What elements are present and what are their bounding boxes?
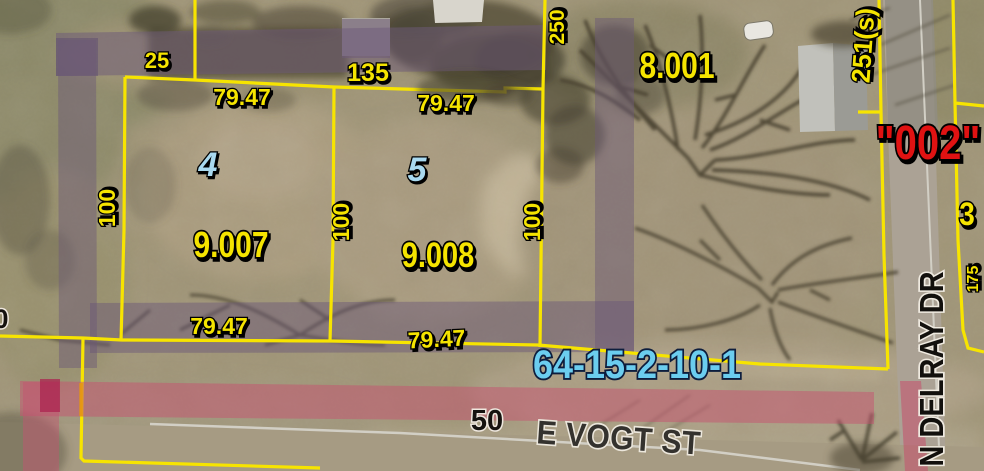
svg-text:175: 175	[965, 266, 982, 293]
svg-text:9.007: 9.007	[193, 225, 268, 265]
svg-text:"002": "002"	[876, 117, 981, 170]
svg-text:5: 5	[408, 151, 428, 189]
svg-text:9.008: 9.008	[402, 235, 475, 274]
svg-text:79.47: 79.47	[213, 84, 271, 110]
svg-text:79.47: 79.47	[190, 313, 248, 339]
svg-text:79.47: 79.47	[407, 325, 466, 354]
svg-text:100: 100	[94, 189, 120, 227]
svg-text:8.001: 8.001	[639, 46, 714, 86]
svg-text:4: 4	[198, 146, 218, 184]
svg-text:64-15-2-10-1: 64-15-2-10-1	[533, 343, 741, 387]
svg-text:50: 50	[471, 405, 503, 437]
svg-text:100: 100	[328, 203, 354, 241]
svg-text:3: 3	[959, 197, 975, 232]
svg-text:79.47: 79.47	[417, 90, 475, 116]
svg-text:25: 25	[145, 48, 169, 73]
svg-text:251(s): 251(s)	[845, 7, 880, 84]
svg-text:135: 135	[347, 59, 389, 87]
svg-text:100: 100	[519, 203, 545, 241]
svg-text:250: 250	[546, 9, 569, 44]
svg-text:0: 0	[0, 304, 9, 334]
svg-text:N DELRAY DR: N DELRAY DR	[913, 271, 950, 466]
